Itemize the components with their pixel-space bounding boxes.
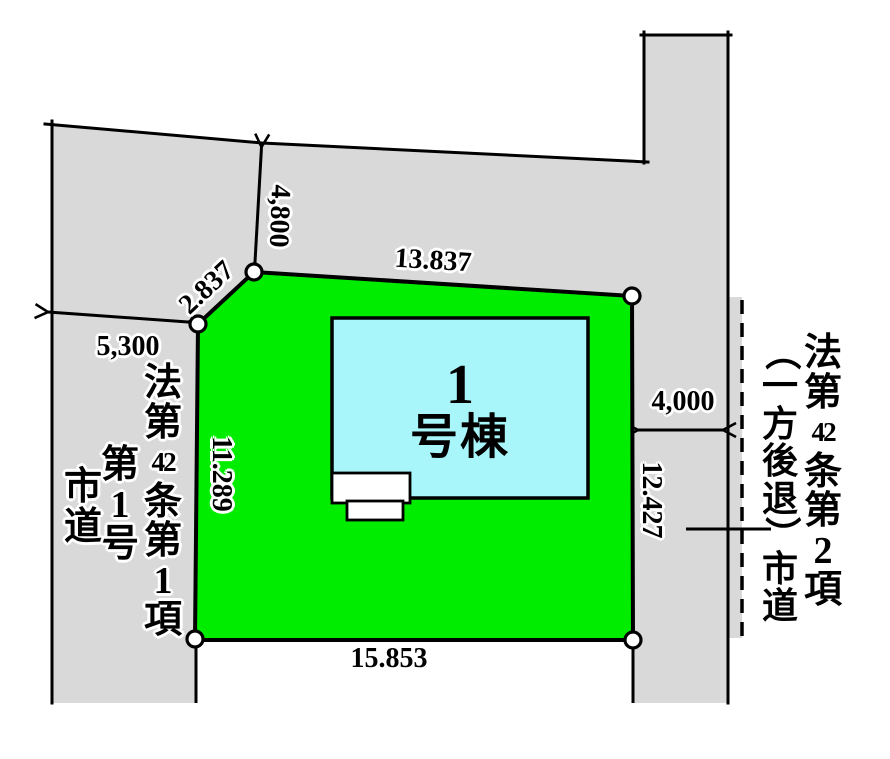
vertex-marker-top-right (624, 288, 640, 304)
entrance-step (347, 501, 403, 520)
dim-label-top-edge: 13.837 (394, 243, 473, 280)
building-number-label: 1 号棟 (410, 357, 510, 463)
right-road-label-col1: 法第42条第2項 (804, 334, 842, 611)
dim-label-right-edge: 12.427 (635, 462, 667, 539)
building-number-line1: 1 (410, 357, 510, 414)
left-road-label-col3: 市道 (64, 468, 102, 547)
dim-label-bottom-edge: 15.853 (351, 643, 428, 675)
dim-label-right-road-width: 4,000 (652, 386, 715, 418)
dim-label-left-edge: 11.289 (205, 436, 237, 511)
left-road-label-col2: 第1号 (101, 446, 139, 565)
dim-label-road-band: 4,800 (262, 184, 296, 248)
building-number-line2: 号棟 (410, 414, 510, 463)
entrance-porch (332, 473, 410, 503)
vertex-marker-bottom-left (187, 631, 203, 647)
dim-label-upper-left-frontage: 5,300 (97, 331, 160, 363)
left-road-label-col1: 法第42条第1項 (144, 364, 182, 641)
right-road-label-col2: （一方後退）市道 (762, 336, 798, 625)
vertex-marker-top-left (246, 264, 262, 280)
vertex-marker-bottom-right (625, 632, 641, 648)
site-plan-diagram: 13.837 5,300 2.837 4,800 11.289 12.427 4… (0, 0, 890, 759)
